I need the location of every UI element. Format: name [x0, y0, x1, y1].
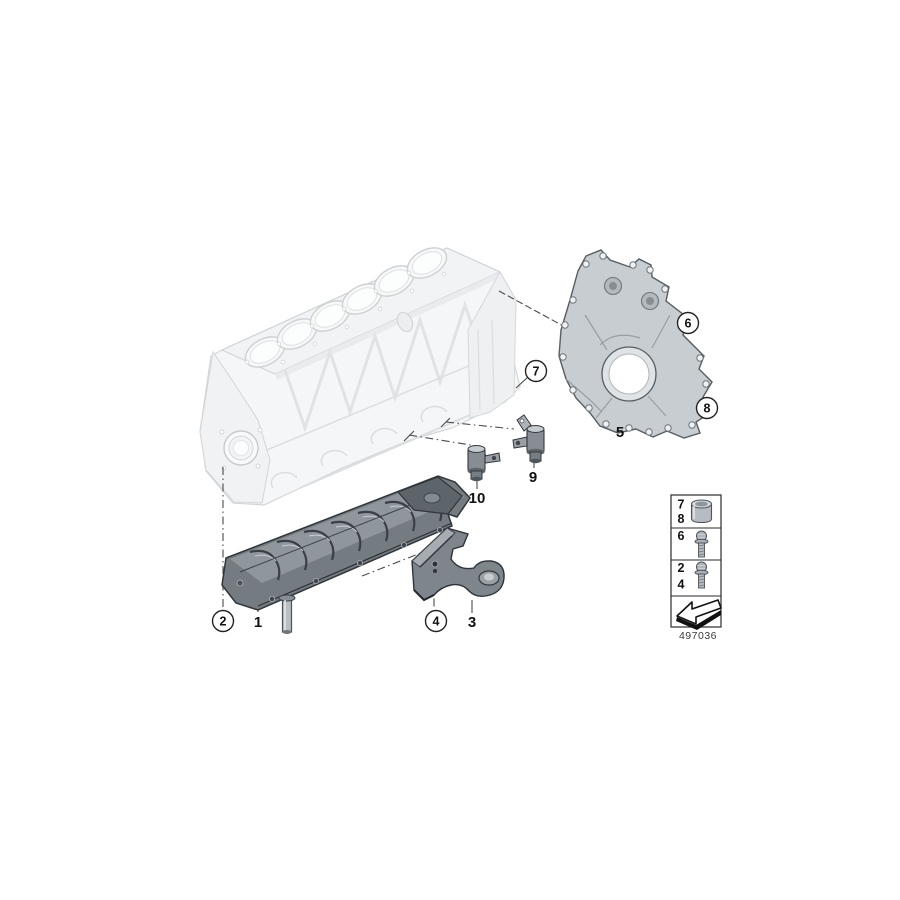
callout-10-label[interactable]: 10 [469, 490, 486, 507]
timing-case-cover-drawing [559, 250, 712, 438]
legend-label-8[interactable]: 8 [678, 512, 685, 526]
callout-1-label[interactable]: 1 [254, 614, 262, 631]
callout-3-label[interactable]: 3 [468, 614, 476, 631]
crankshaft-sensor-9-drawing [513, 415, 545, 463]
callout-7-label[interactable]: 7 [533, 365, 540, 379]
callout-5[interactable]: 5 [616, 424, 624, 441]
callout-8[interactable]: 8 [697, 398, 718, 419]
crankshaft-sensor-10-drawing [468, 446, 501, 482]
legend-table: 7 8 6 2 4 [671, 495, 721, 630]
parts-diagram-page: 2 1 4 3 5 6 7 8 9 10 7 8 [0, 0, 900, 900]
legend-label-7[interactable]: 7 [678, 498, 685, 512]
callout-2-label[interactable]: 2 [220, 615, 227, 629]
callout-9[interactable]: 9 [529, 469, 537, 486]
dowel-sleeve-icon [692, 500, 712, 523]
callout-6[interactable]: 6 [678, 313, 699, 334]
guide-bracket-drawing [412, 528, 504, 600]
callout-3[interactable]: 3 [468, 614, 476, 631]
callout-10[interactable]: 10 [469, 490, 486, 507]
callout-8-label[interactable]: 8 [704, 402, 711, 416]
legend-label-2[interactable]: 2 [678, 561, 685, 575]
legend-label-4[interactable]: 4 [678, 578, 685, 592]
callout-1[interactable]: 1 [254, 614, 262, 631]
callout-9-label[interactable]: 9 [529, 469, 537, 486]
callout-4-label[interactable]: 4 [433, 615, 440, 629]
callout-5-label[interactable]: 5 [616, 424, 624, 441]
legend-row-dowel: 7 8 [678, 498, 712, 527]
exploded-parts-diagram: 2 1 4 3 5 6 7 8 9 10 7 8 [0, 0, 900, 900]
legend-label-6[interactable]: 6 [678, 529, 685, 543]
callout-4[interactable]: 4 [426, 611, 447, 632]
callout-6-label[interactable]: 6 [685, 317, 692, 331]
callout-7[interactable]: 7 [526, 361, 547, 382]
baffle-guide-tube [279, 595, 295, 634]
callout-2[interactable]: 2 [213, 611, 234, 632]
diagram-number: 497036 [679, 630, 717, 642]
